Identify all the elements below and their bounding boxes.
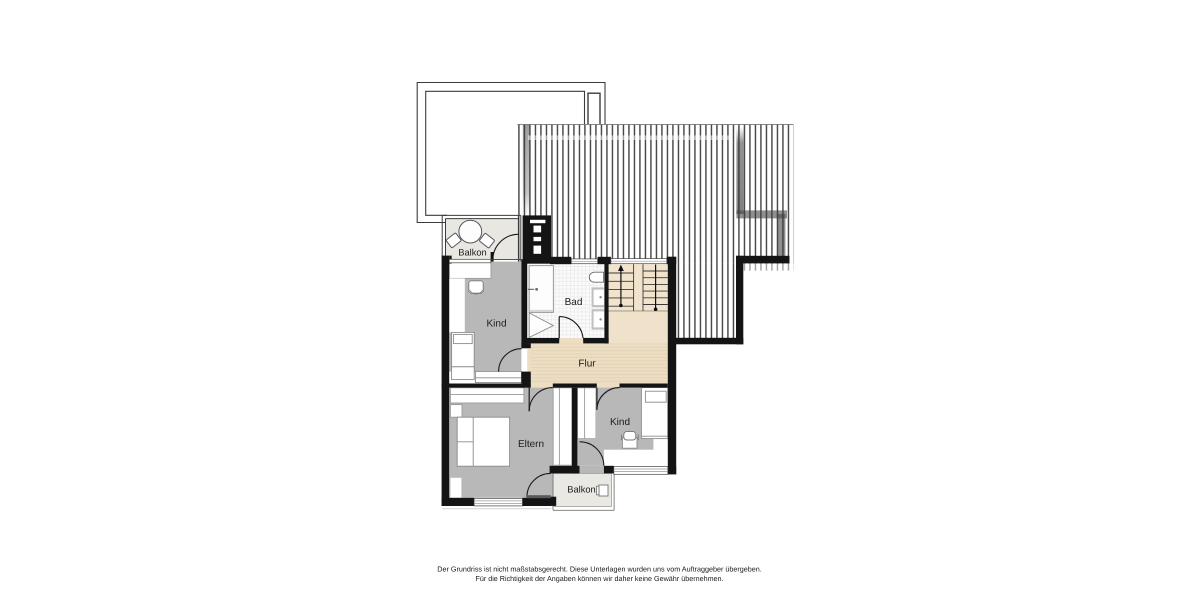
svg-text:Balkon: Balkon xyxy=(458,248,486,258)
svg-text:Der Grundriss ist nicht maßsta: Der Grundriss ist nicht maßstabsgerecht.… xyxy=(437,565,761,574)
svg-text:Kind: Kind xyxy=(610,417,630,428)
svg-text:Für die Richtigkeit der Angabe: Für die Richtigkeit der Angaben können w… xyxy=(475,574,723,583)
svg-text:Eltern: Eltern xyxy=(518,439,544,450)
svg-text:Kind: Kind xyxy=(486,319,506,330)
svg-text:Bad: Bad xyxy=(565,297,583,308)
svg-text:Balkon: Balkon xyxy=(567,484,595,494)
svg-text:Flur: Flur xyxy=(578,359,596,370)
